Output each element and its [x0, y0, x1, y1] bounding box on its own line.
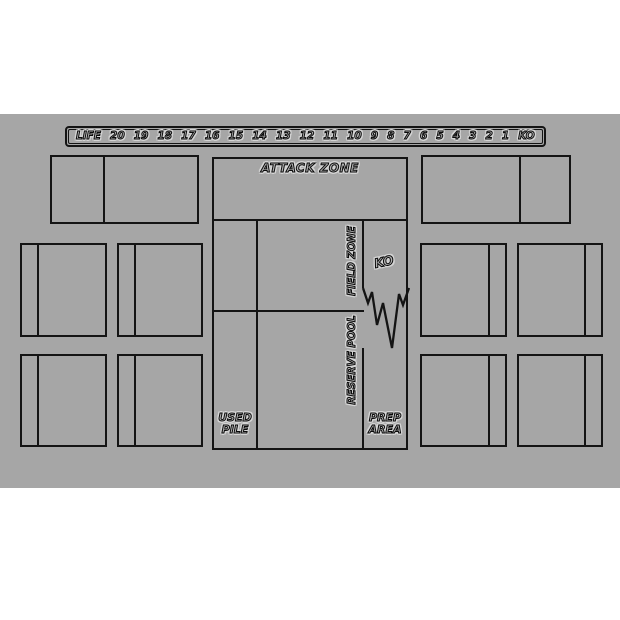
right-card-slot-1-strip-divider: [488, 245, 490, 335]
ko-zone-label: KO: [363, 252, 405, 273]
life-value-10: 10: [347, 131, 362, 142]
life-value-8: 8: [387, 131, 394, 142]
life-value-19: 19: [134, 131, 149, 142]
left-card-slot-4: [117, 354, 203, 447]
life-value-1: 1: [502, 131, 509, 142]
life-value-14: 14: [252, 131, 267, 142]
left-card-slot-3-strip-divider: [37, 356, 39, 445]
central-play-panel: ATTACK ZONE FIELD ZONE RESERVE POOL KO U…: [212, 157, 408, 450]
life-track-inner-border: LIFE 20 19 18 17 16 15 14 13 12 11 10 9 …: [68, 129, 543, 144]
middle-row-divider: [214, 310, 364, 312]
life-value-5: 5: [436, 131, 443, 142]
reserve-pool-label: RESERVE POOL: [347, 314, 361, 406]
attack-zone-label: ATTACK ZONE: [214, 162, 406, 174]
life-value-9: 9: [371, 131, 378, 142]
top-right-card-slot-divider: [519, 157, 521, 222]
life-value-ko: KO: [518, 131, 534, 142]
life-value-7: 7: [404, 131, 411, 142]
life-track-title: LIFE: [76, 131, 101, 142]
right-card-slot-1: [420, 243, 507, 337]
life-value-13: 13: [276, 131, 291, 142]
top-left-card-slot-divider: [103, 157, 105, 222]
right-card-slot-4: [517, 354, 603, 447]
left-card-slot-3: [20, 354, 107, 447]
life-value-20: 20: [110, 131, 125, 142]
attack-zone-bottom-line: [214, 219, 406, 221]
life-value-15: 15: [229, 131, 244, 142]
right-card-slot-2: [517, 243, 603, 337]
field-zone-label: FIELD ZONE: [347, 219, 361, 303]
top-right-card-slot: [421, 155, 571, 224]
prep-area-label: PREP AREA: [364, 412, 406, 437]
life-value-18: 18: [157, 131, 172, 142]
used-pile-label: USED PILE: [214, 412, 256, 437]
life-value-6: 6: [420, 131, 427, 142]
playmat: LIFE 20 19 18 17 16 15 14 13 12 11 10 9 …: [0, 114, 620, 488]
life-value-12: 12: [300, 131, 315, 142]
left-card-slot-1-strip-divider: [37, 245, 39, 335]
left-column-divider: [256, 219, 258, 448]
life-value-11: 11: [323, 131, 338, 142]
life-track: LIFE 20 19 18 17 16 15 14 13 12 11 10 9 …: [65, 126, 546, 147]
life-value-17: 17: [181, 131, 196, 142]
right-card-slot-2-strip-divider: [584, 245, 586, 335]
left-card-slot-1: [20, 243, 107, 337]
right-card-slot-3-strip-divider: [488, 356, 490, 445]
life-value-16: 16: [205, 131, 220, 142]
left-card-slot-2-strip-divider: [134, 245, 136, 335]
left-card-slot-4-strip-divider: [134, 356, 136, 445]
prep-area-line2: AREA: [364, 424, 406, 436]
life-value-4: 4: [453, 131, 460, 142]
used-pile-line2: PILE: [214, 424, 256, 436]
left-card-slot-2: [117, 243, 203, 337]
life-value-3: 3: [469, 131, 476, 142]
right-card-slot-4-strip-divider: [584, 356, 586, 445]
ko-burst-jagged-edge: [354, 279, 412, 355]
life-value-2: 2: [486, 131, 493, 142]
right-card-slot-3: [420, 354, 507, 447]
right-column-divider-upper: [362, 219, 364, 288]
top-left-card-slot: [50, 155, 199, 224]
